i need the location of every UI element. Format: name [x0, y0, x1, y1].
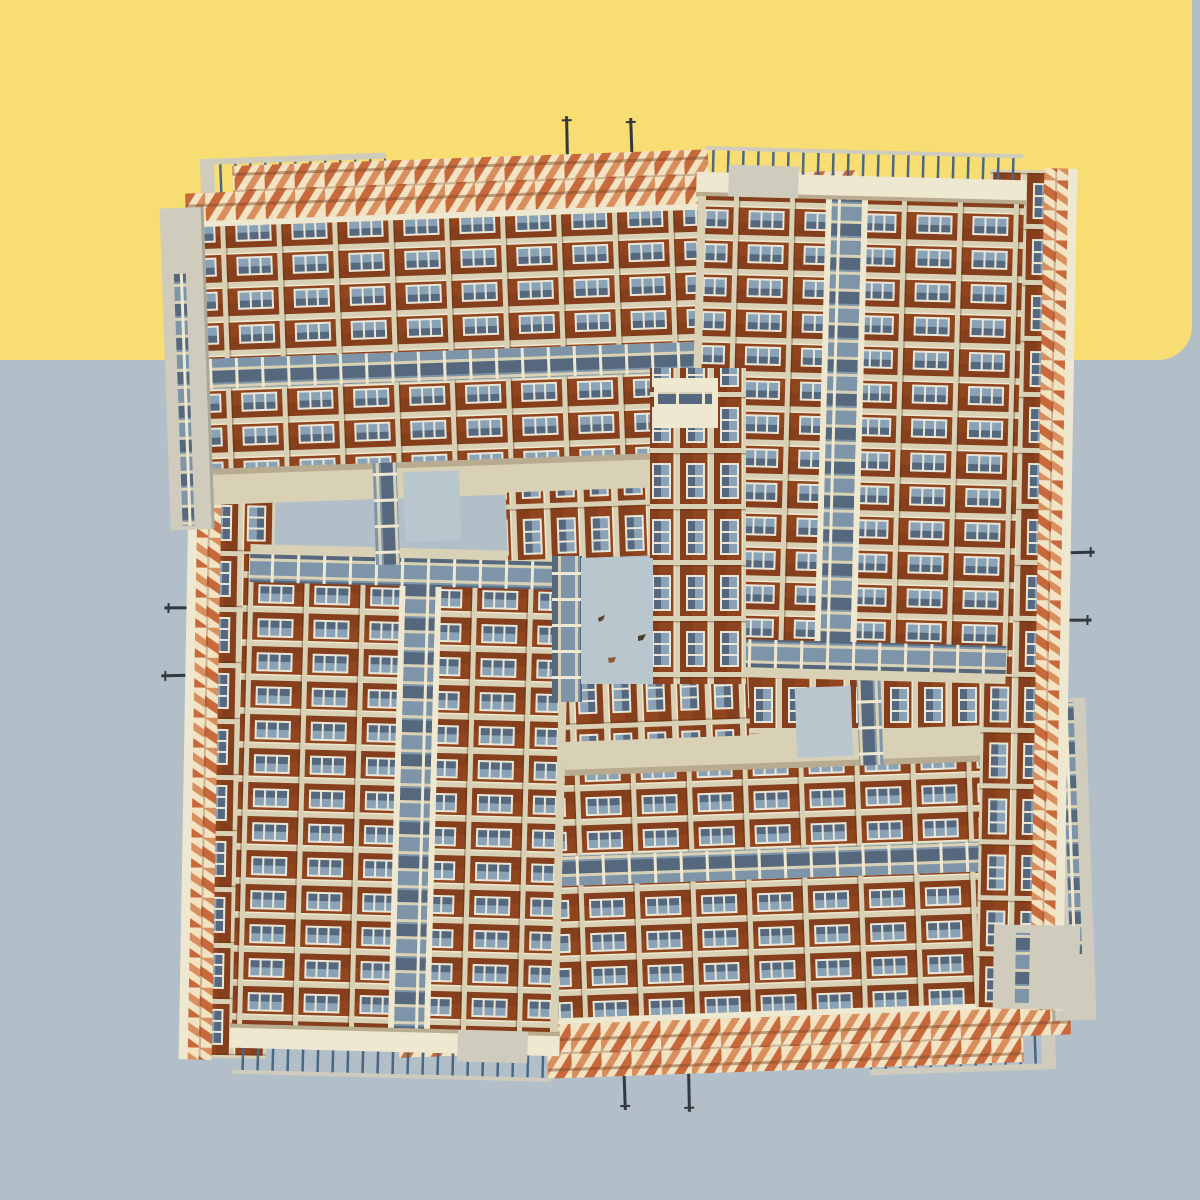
centre-glass-column-left-of-gap	[552, 556, 582, 702]
building-collage-artwork	[0, 0, 1200, 1200]
building-collage-image	[0, 0, 1200, 1200]
centre-strip-right-of-gap	[650, 368, 746, 684]
central-sky-gap	[581, 558, 653, 684]
